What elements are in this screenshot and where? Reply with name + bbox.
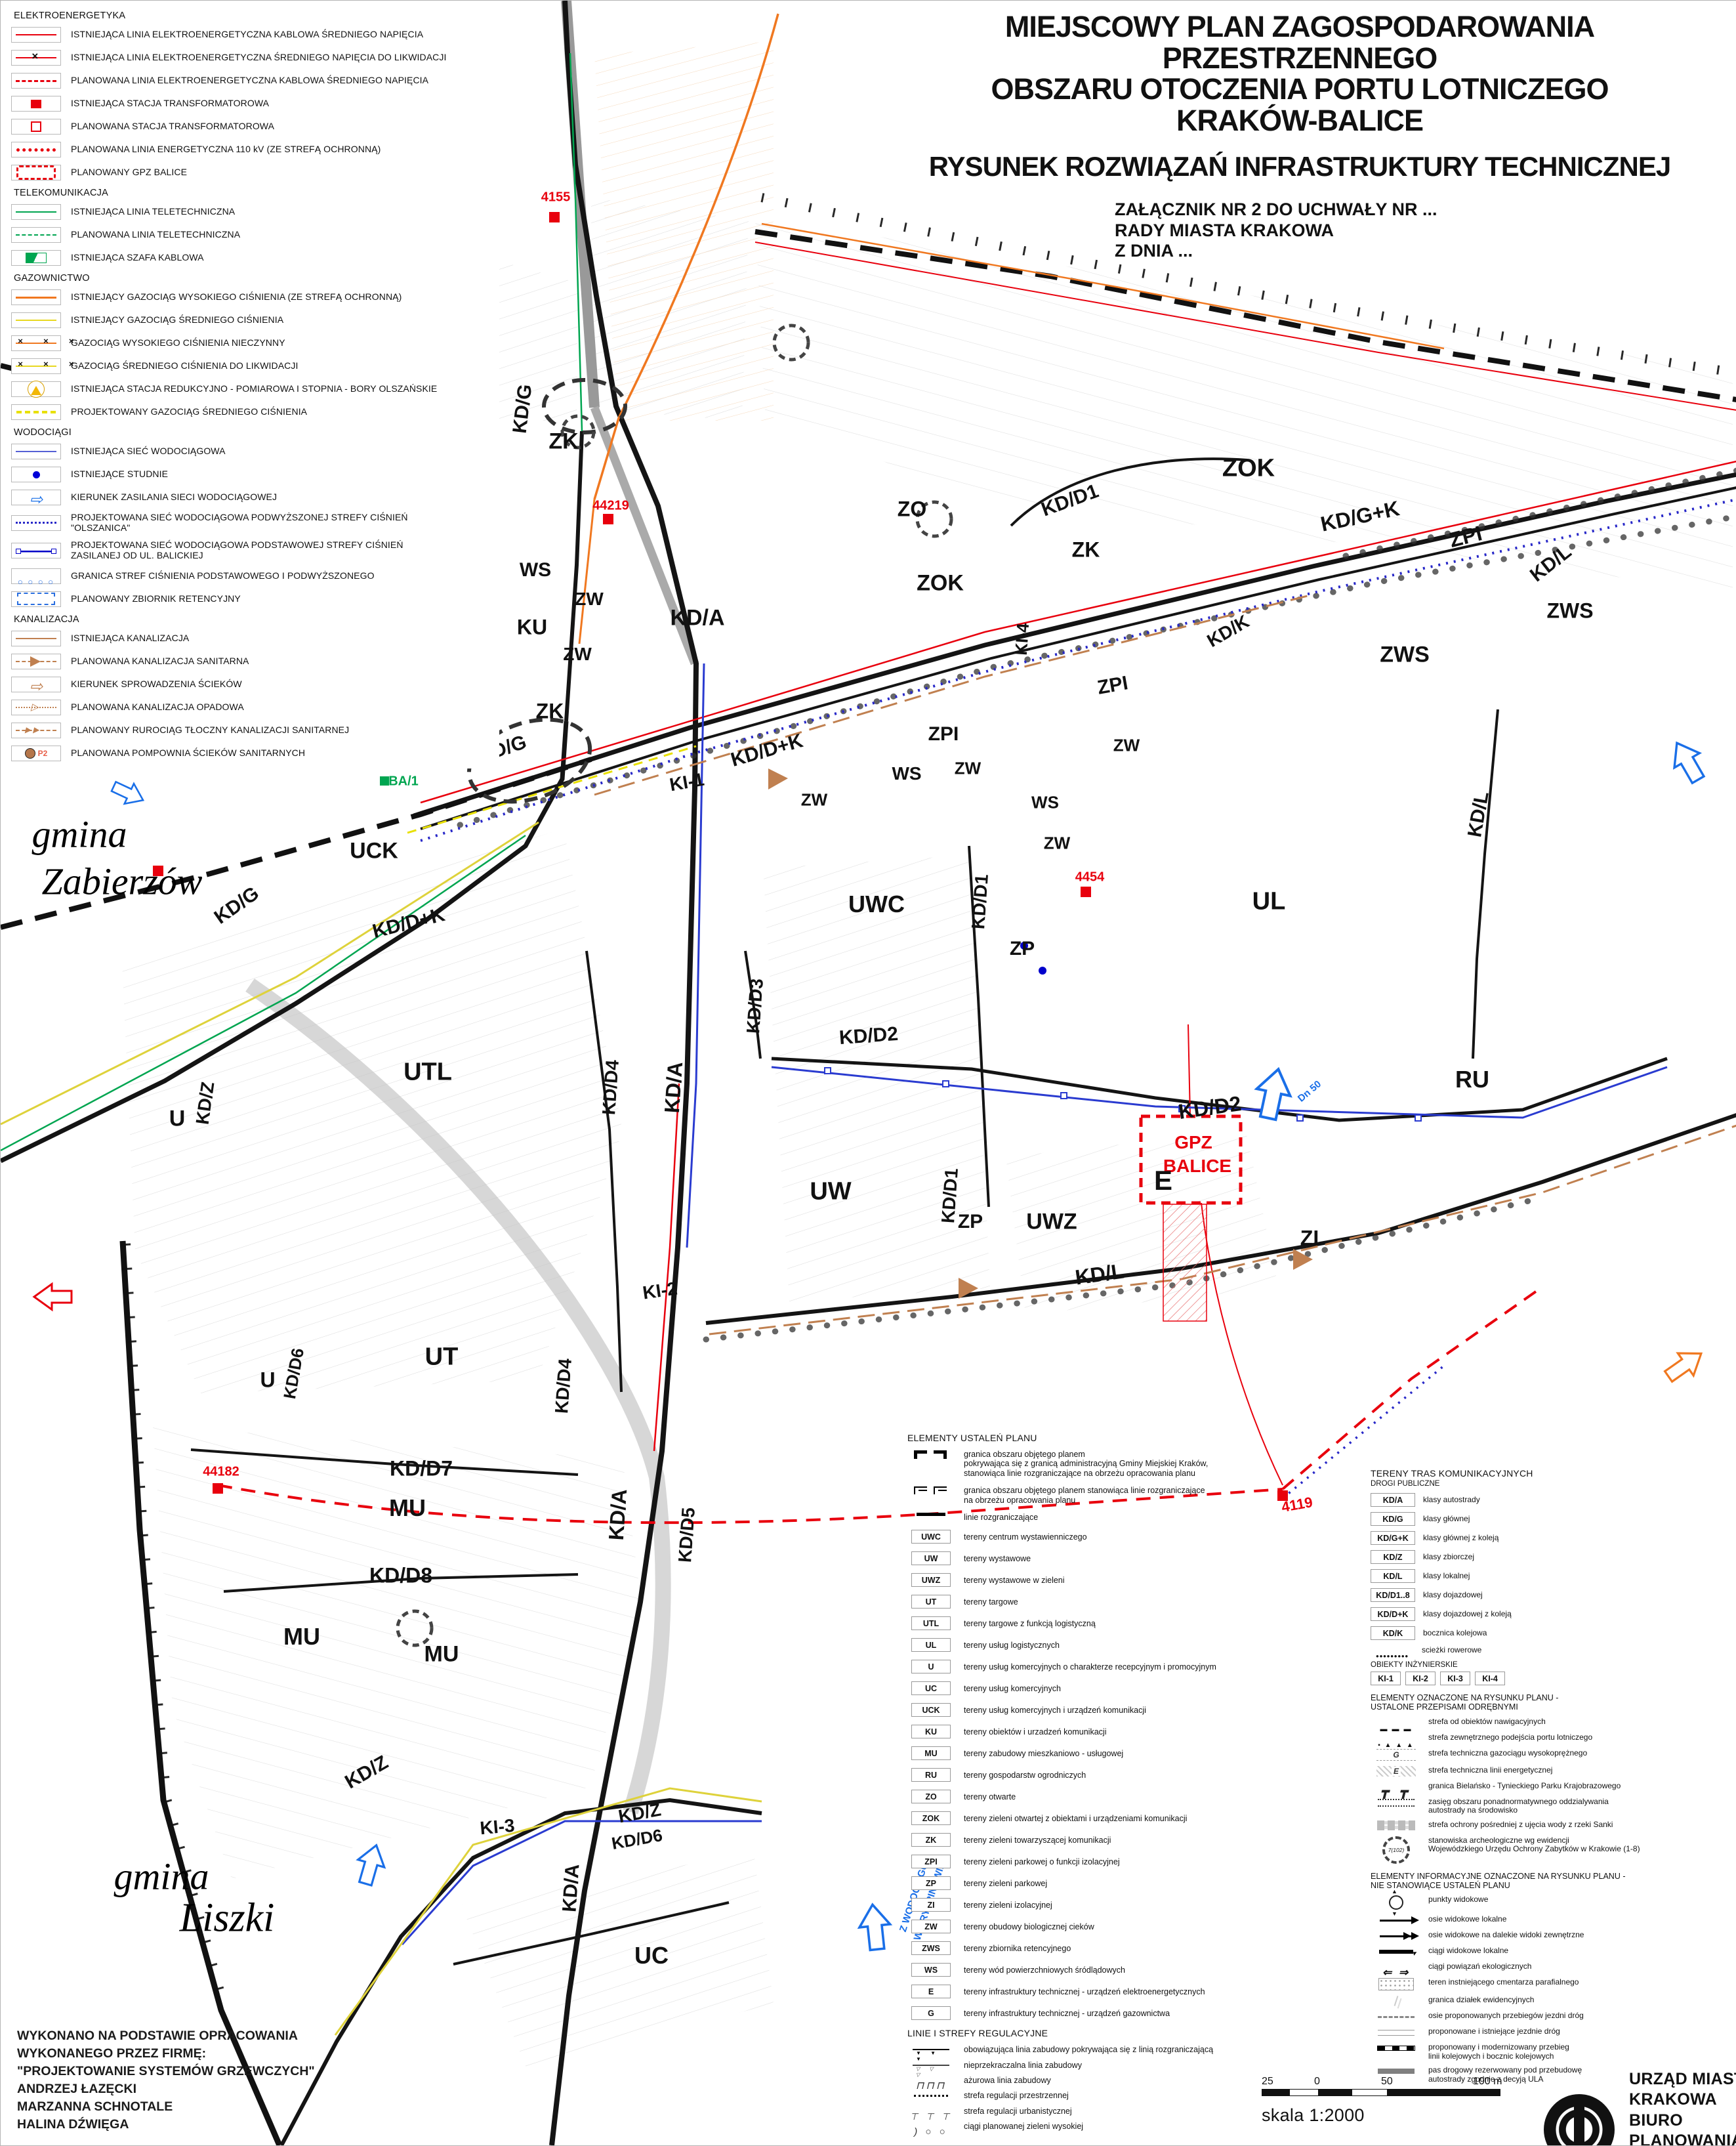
- legend-section-title: ELEMENTY OZNACZONE NA RYSUNKU PLANU - US…: [1371, 1693, 1736, 1712]
- road-code-box: KD/Z: [1371, 1550, 1415, 1564]
- legend-symbol: [1371, 1798, 1422, 1808]
- legend-item-label: nieprzekraczalna linia zabudowy: [964, 2061, 1082, 2070]
- legend-section-title: ELEKTROENERGETYKA: [14, 11, 499, 21]
- zone-code: UCK: [922, 1706, 940, 1715]
- road-code-box: KD/D+K: [1371, 1607, 1415, 1621]
- cable-cabinet: [380, 776, 389, 786]
- scale-ticks: 25 0 50 100 m: [1262, 2076, 1537, 2089]
- engineering-code-box: KI-1: [1371, 1672, 1401, 1685]
- legend-symbol: [1371, 1962, 1422, 1973]
- legend-item: ISTNIEJĄCA KANALIZACJA: [11, 631, 499, 646]
- rect-blue-dash-icon: [17, 593, 55, 605]
- legend-symbol-box: [11, 119, 61, 135]
- legend-item-label: ciągi widokowe lokalne: [1428, 1946, 1508, 1955]
- zone-code-box-wrap: E: [907, 1985, 955, 1998]
- zone-code-box: KU: [911, 1725, 951, 1738]
- legend-item-label: granica obszaru objętego planem stanowią…: [964, 1486, 1205, 1505]
- legend-symbol: [907, 1486, 955, 1495]
- road-code-box: KD/A: [1371, 1493, 1415, 1507]
- zone-code-box-wrap: MU: [907, 1746, 955, 1760]
- zone-code: G: [928, 2009, 934, 2018]
- legend-item: PLANOWANA LINIA TELETECHNICZNA: [11, 227, 499, 243]
- legend-item-label: ISTNIEJĄCA SZAFA KABLOWA: [71, 253, 204, 263]
- zone-code-box-wrap: ZK: [907, 1833, 955, 1847]
- credits-line: WYKONANEGO PRZEZ FIRMĘ:: [17, 2045, 315, 2063]
- thickline-icon: [917, 1513, 945, 1516]
- reg-przest-icon: [914, 2095, 948, 2097]
- road-code: KD/L: [1383, 1572, 1402, 1581]
- zone-code-box: ZP: [911, 1876, 951, 1890]
- legend-item zone: Gtereny infrastruktury technicznej - urz…: [907, 2006, 1351, 2020]
- legend-section-title: TELEKOMUNIKACJA: [14, 188, 499, 198]
- zone-code-box-wrap: UC: [907, 1681, 955, 1695]
- legend-item-label: PLANOWANA LINIA ENERGETYCZNA 110 kV (ZE …: [71, 144, 381, 155]
- legend-item-label: bocznica kolejowa: [1423, 1629, 1487, 1637]
- line-blue-sq-icon: [16, 549, 56, 553]
- legend-item: granica działek ewidencyjnych: [1371, 1996, 1736, 2006]
- legend-item: PROJEKTOWANA SIEĆ WODOCIĄGOWA PODSTAWOWE…: [11, 540, 499, 560]
- legend-item-label: PLANOWANY ZBIORNIK RETENCYJNY: [71, 594, 241, 604]
- scale-tick: 100 m: [1473, 2076, 1502, 2088]
- symbol-inline-text: 7(102): [1388, 1847, 1405, 1853]
- legend-symbol: [1371, 1978, 1422, 1990]
- legend-item-label: klasy dojazdowej z koleją: [1423, 1610, 1512, 1618]
- legend-item-label: strefa zewnętrznego podejścia portu lotn…: [1428, 1733, 1592, 1742]
- plan-title-line-3: OBSZARU OTOCZENIA PORTU LOTNICZEGO: [873, 74, 1726, 105]
- zone-code: UWZ: [922, 1576, 940, 1585]
- zone-code-box-wrap: UW: [907, 1551, 955, 1565]
- legend-item-label: ISTNIEJĄCE STUDNIE: [71, 469, 168, 480]
- zone-code-box: ZK: [911, 1833, 951, 1847]
- legend-item road: KD/Zklasy zbiorczej: [1371, 1550, 1736, 1564]
- zone-code-box: U: [911, 1660, 951, 1673]
- zone-label: tereny zabudowy mieszkaniowo - usługowej: [964, 1749, 1123, 1758]
- zone-code-box: ZW: [911, 1920, 951, 1933]
- legend-item road: KD/D+Kklasy dojazdowej z koleją: [1371, 1607, 1736, 1621]
- legend-item road: KD/Aklasy autostrady: [1371, 1493, 1736, 1507]
- legend-item-label: stanowiska archeologiczne wg ewidencji W…: [1428, 1836, 1640, 1854]
- city-planning-office-logo-icon: [1544, 2094, 1615, 2146]
- zone-code-box-wrap: ZO: [907, 1790, 955, 1803]
- legend-section-title: LINIE I STREFY REGULACYJNE: [907, 2028, 1351, 2038]
- publisher-block: URZĄD MIASTA KRAKOWA BIURO PLANOWANIA PR…: [1544, 2069, 1736, 2146]
- zone-label: tereny zieleni towarzyszącej komunikacji: [964, 1836, 1111, 1845]
- legend-symbol: [1371, 1895, 1422, 1910]
- legend-item: osie proponowanych przebiegów jezdni dró…: [1371, 2011, 1736, 2022]
- legend-item-label: strefa techniczna gazociągu wysokoprężne…: [1428, 1749, 1587, 1757]
- publisher-office: BIURO PLANOWANIA PRZESTRZENNEGO: [1629, 2111, 1736, 2146]
- plan-title-line-4: KRAKÓW-BALICE: [873, 105, 1726, 137]
- legend-symbol: [907, 2095, 955, 2097]
- legend-item-label: klasy lokalnej: [1423, 1572, 1470, 1580]
- scale-tick: 0: [1314, 2076, 1320, 2088]
- zone-label: tereny infrastruktury technicznej - urzą…: [964, 2009, 1170, 2018]
- zone-code-box: UWC: [911, 1530, 951, 1544]
- legend-item-label: ciągi powiązań ekologicznych: [1428, 1962, 1531, 1971]
- scale-bar-graphic: [1262, 2089, 1500, 2096]
- legend-item-label: GRANICA STREF CIŚNIENIA PODSTAWOWEGO I P…: [71, 571, 375, 581]
- legend-item zone: ZWStereny zbiornika retencyjnego: [907, 1941, 1351, 1955]
- zasieg-icon: [1378, 1799, 1415, 1807]
- legend-item-label: GAZOCIĄG ŚREDNIEGO CIŚNIENIA DO LIKWIDAC…: [71, 361, 298, 371]
- legend-item: Estrefa techniczna linii energetycznej: [1371, 1766, 1736, 1777]
- zone-label: tereny obudowy biologicznej cieków: [964, 1922, 1094, 1931]
- legend-item zone: KUtereny obiektów i urzadzeń komunikacji: [907, 1725, 1351, 1738]
- legend-item zone: UCKtereny usług komercyjnych i urządzeń …: [907, 1703, 1351, 1717]
- legend-symbol-box: [11, 568, 61, 584]
- legend-item-label: PROJEKTOWANA SIEĆ WODOCIĄGOWA PODWYŻSZON…: [71, 513, 408, 533]
- zone-code: ZI: [927, 1901, 934, 1910]
- legend-item-label: ISTNIEJĄCA LINIA ELEKTROENERGETYCZNA ŚRE…: [71, 53, 446, 63]
- sq-red-icon: [31, 100, 41, 108]
- legend-item: ISTNIEJĄCA LINIA TELETECHNICZNA: [11, 204, 499, 220]
- legend-symbol-box: [11, 27, 61, 43]
- line-orange-x-icon: [16, 343, 56, 344]
- line-brown-icon: [16, 638, 56, 639]
- zone-code: ZO: [925, 1792, 936, 1801]
- legend-item zone: RUtereny gospodarstw ogrodniczych: [907, 1768, 1351, 1782]
- zone-label: tereny targowe: [964, 1597, 1018, 1607]
- road-code: KD/G+K: [1377, 1534, 1409, 1543]
- zone-code: UL: [926, 1641, 937, 1650]
- publisher-name: URZĄD MIASTA KRAKOWA: [1629, 2069, 1736, 2111]
- legend-item zone: ZWtereny obudowy biologicznej cieków: [907, 1920, 1351, 1933]
- zone-code-box: G: [911, 2006, 951, 2020]
- legend-item: osie widokowe lokalne: [1371, 1915, 1736, 1925]
- engineering-code-box: KI-3: [1440, 1672, 1470, 1685]
- legend-item-label: ISTNIEJĄCA SIEĆ WODOCIĄGOWA: [71, 446, 226, 457]
- plan-title-line-2: PRZESTRZENNEGO: [873, 43, 1726, 74]
- legend-symbol-box: [11, 204, 61, 220]
- plan-subtitle: RYSUNEK ROZWIĄZAŃ INFRASTRUKTURY TECHNIC…: [873, 151, 1726, 182]
- legend-symbol: [1371, 2027, 1422, 2038]
- legend-item zone: ZPItereny zieleni parkowej o funkcji izo…: [907, 1855, 1351, 1868]
- zone-code-box: ZPI: [911, 1855, 951, 1868]
- legend-item-label: KIERUNEK ZASILANIA SIECI WODOCIĄGOWEJ: [71, 492, 277, 503]
- legend-item: linie rozgraniczające: [907, 1513, 1351, 1522]
- punkt-icon: [1389, 1895, 1403, 1910]
- legend-symbol-box: [11, 444, 61, 459]
- legend-item-label: KIERUNEK SPROWADZENIA ŚCIEKÓW: [71, 679, 242, 690]
- zone-code-box: UTL: [911, 1616, 951, 1630]
- road-code: KD/D+K: [1378, 1610, 1409, 1619]
- zone-code: UW: [924, 1554, 938, 1563]
- szafa-icon: [26, 253, 47, 263]
- credits-line: MARZANNA SCHNOTALE: [17, 2098, 315, 2116]
- legend-item-label: PROJEKTOWANY GAZOCIĄG ŚREDNIEGO CIŚNIENI…: [71, 407, 307, 417]
- legend-item-label: PLANOWANA STACJA TRANSFORMATOROWA: [71, 121, 274, 132]
- zone-code-box-wrap: UCK: [907, 1703, 955, 1717]
- legend-item: proponowany i modernizowany przebieg lin…: [1371, 2043, 1736, 2061]
- granica1-icon: [912, 1450, 950, 1460]
- legend-symbol: E: [1371, 1766, 1422, 1777]
- attachment-line-3: Z DNIA ...: [1115, 241, 1726, 262]
- scale-tick: 50: [1381, 2076, 1393, 2088]
- zone-code: RU: [925, 1771, 937, 1780]
- line-brown-arrf-icon: [16, 661, 56, 662]
- legend-item: ISTNIEJĄCE STUDNIE: [11, 467, 499, 482]
- legend-item road: KD/D1..8klasy dojazdowej: [1371, 1588, 1736, 1602]
- legend-item: GRANICA STREF CIŚNIENIA PODSTAWOWEGO I P…: [11, 568, 499, 584]
- os-lok-icon: [1380, 1920, 1413, 1922]
- road-code-box: KD/G+K: [1371, 1531, 1415, 1545]
- zone-code: UT: [926, 1597, 937, 1607]
- zone-code: UWC: [921, 1532, 941, 1542]
- legend-plan-elements: ELEMENTY USTALEŃ PLANUgranica obszaru ob…: [907, 1433, 1351, 2137]
- line-red-dash-icon: [16, 80, 56, 82]
- legend-symbol-box: P2: [11, 746, 61, 761]
- credits-line: ANDRZEJ ŁAZĘCKI: [17, 2080, 315, 2098]
- line-brown-arr2-icon: [16, 730, 56, 731]
- zone-code-box-wrap: U: [907, 1660, 955, 1673]
- legend-subtitle: DROGI PUBLICZNE: [1371, 1480, 1736, 1488]
- legend-item zone: UWZtereny wystawowe w zieleni: [907, 1573, 1351, 1587]
- road-code: KD/A: [1383, 1496, 1403, 1505]
- zone-code-box-wrap: RU: [907, 1768, 955, 1782]
- jezdnie-icon: [1378, 2030, 1415, 2036]
- cmentarz-icon: [1378, 1978, 1414, 1990]
- legend-item zone: UWCtereny centrum wystawienniczego: [907, 1530, 1351, 1544]
- zone-label: tereny usług komercyjnych: [964, 1684, 1061, 1693]
- legend-item: PLANOWANA LINIA ELEKTROENERGETYCZNA KABL…: [11, 73, 499, 89]
- legend-symbol-box: [11, 96, 61, 112]
- gpz-icon: [16, 165, 56, 180]
- legend-symbol: [1371, 1645, 1414, 1656]
- zone-code-box-wrap: UWZ: [907, 1573, 955, 1587]
- legend-item: ISTNIEJĄCA STACJA TRANSFORMATOROWA: [11, 96, 499, 112]
- legend-item-label: klasy głównej: [1423, 1515, 1470, 1523]
- legend-item-label: ISTNIEJĄCA LINIA TELETECHNICZNA: [71, 207, 235, 217]
- title-block: MIEJSCOWY PLAN ZAGOSPODAROWANIA PRZESTRZ…: [873, 11, 1726, 262]
- zone-code: ZP: [926, 1879, 936, 1888]
- legend-item-label: PLANOWANA KANALIZACJA OPADOWA: [71, 702, 244, 713]
- zone-label: tereny otwarte: [964, 1792, 1016, 1801]
- zone-code-box: E: [911, 1985, 951, 1998]
- legend-symbol-box: [11, 543, 61, 558]
- legend-item: PLANOWANA LINIA ENERGETYCZNA 110 kV (ZE …: [11, 142, 499, 158]
- legend-item-label: strefa ochrony pośredniej z ujęcia wody …: [1428, 1820, 1613, 1829]
- legend-section-title: OBIEKTY INŻYNIERSKIE: [1371, 1661, 1736, 1669]
- legend-item: strefa ochrony pośredniej z ujęcia wody …: [1371, 1820, 1736, 1831]
- engineering-code-box: KI-2: [1405, 1672, 1436, 1685]
- legend-item-label: PLANOWANA KANALIZACJA SANITARNA: [71, 656, 249, 667]
- legend-symbol: 7(102): [1371, 1836, 1422, 1864]
- zone-code: MU: [924, 1749, 937, 1758]
- legend-item-label: osie widokowe na dalekie widoki zewnętrz…: [1428, 1931, 1584, 1939]
- zone-code-box-wrap: WS: [907, 1963, 955, 1977]
- legend-symbol-box: [11, 142, 61, 158]
- road-code: KD/K: [1383, 1629, 1403, 1638]
- zone-label: tereny zieleni otwartej z obiektami i ur…: [964, 1814, 1187, 1823]
- road-code: KD/G: [1382, 1515, 1403, 1524]
- legend-symbol-box: [11, 515, 61, 531]
- engineering-objects-row: KI-1KI-2KI-3KI-4: [1371, 1672, 1736, 1685]
- engineering-code-box: KI-4: [1475, 1672, 1505, 1685]
- os-prop-icon: [1378, 2016, 1415, 2018]
- legend-symbol: [907, 2065, 955, 2066]
- zone-code-box: WS: [911, 1963, 951, 1977]
- legend-item-label: PLANOWANY GPZ BALICE: [71, 167, 187, 178]
- legend-item: osie widokowe na dalekie widoki zewnętrz…: [1371, 1931, 1736, 1941]
- legend-item-label: klasy dojazdowej: [1423, 1591, 1483, 1599]
- zone-label: tereny usług logistycznych: [964, 1641, 1060, 1650]
- zone-code-box-wrap: ZI: [907, 1898, 955, 1912]
- legend-item-label: teren instniejącego cmentarza parafialne…: [1428, 1978, 1579, 1987]
- plan-title-line-1: MIEJSCOWY PLAN ZAGOSPODAROWANIA: [873, 11, 1726, 43]
- credits-line: "PROJEKTOWANIE SYSTEMÓW GRZEWCZYCH": [17, 2063, 315, 2080]
- scale-bar: 25 0 50 100 m skala 1:2000: [1262, 2076, 1537, 2126]
- legend-item: teren instniejącego cmentarza parafialne…: [1371, 1978, 1736, 1990]
- zone-code: ZOK: [922, 1814, 940, 1823]
- legend-symbol-box: [11, 250, 61, 266]
- legend-symbol-box: [11, 490, 61, 505]
- legend-item-label: klasy zbiorczej: [1423, 1553, 1474, 1561]
- zone-label: tereny gospodarstw ogrodniczych: [964, 1771, 1086, 1780]
- road-code: KD/Z: [1383, 1553, 1402, 1562]
- legend-item: KIERUNEK ZASILANIA SIECI WODOCIĄGOWEJ: [11, 490, 499, 505]
- zone-code: ZPI: [924, 1857, 937, 1866]
- legend-symbol: [1371, 2011, 1422, 2022]
- zone-code-box: UW: [911, 1551, 951, 1565]
- legend-item-label: GAZOCIĄG WYSOKIEGO CIŚNIENIA NIECZYNNY: [71, 338, 285, 348]
- zone-code: ZK: [926, 1836, 937, 1845]
- legend-item: ISTNIEJĄCA SZAFA KABLOWA: [11, 250, 499, 266]
- stacja-gaz-icon: [28, 381, 45, 398]
- zone-code-box: UWZ: [911, 1573, 951, 1587]
- legend-item-label: PROJEKTOWANA SIEĆ WODOCIĄGOWA PODSTAWOWE…: [71, 540, 403, 560]
- legend-item: obowiązująca linia zabudowy pokrywająca …: [907, 2045, 1351, 2054]
- credits-line: HALINA DŹWIĘGA: [17, 2116, 315, 2134]
- line-blue-icon: [16, 451, 56, 452]
- legend-item zone: Etereny infrastruktury technicznej - urz…: [907, 1985, 1351, 1998]
- legend-item: ISTNIEJĄCY GAZOCIĄG ŚREDNIEGO CIŚNIENIA: [11, 312, 499, 328]
- zone-label: tereny usług komercyjnych i urządzeń kom…: [964, 1706, 1146, 1715]
- zone-code-box-wrap: ZWS: [907, 1941, 955, 1955]
- legend-symbol-box: [11, 312, 61, 328]
- legend-item: PLANOWANY GPZ BALICE: [11, 165, 499, 180]
- legend-symbol-box: [11, 50, 61, 66]
- legend-symbol-box: [11, 404, 61, 420]
- line-blue-dots-icon: [16, 522, 56, 524]
- line-red-dot-icon: [16, 148, 56, 152]
- zone-code-box-wrap: ZOK: [907, 1811, 955, 1825]
- attachment-line-2: RADY MIASTA KRAKOWA: [1115, 221, 1726, 242]
- zone-label: tereny zieleni izolacyjnej: [964, 1901, 1052, 1910]
- legend-symbol: [1371, 1996, 1422, 2006]
- legend-item-label: ciągi planowanej zieleni wysokiej: [964, 2122, 1083, 2131]
- legend-item-label: strefa od obiektów nawigacyjnych: [1428, 1717, 1546, 1726]
- granica2-icon: [912, 1486, 950, 1495]
- line-yellow-dashb-icon: [16, 411, 56, 413]
- zone-code-box: UCK: [911, 1703, 951, 1717]
- legend-symbol-box: [11, 591, 61, 607]
- zone-label: tereny obiektów i urzadzeń komunikacji: [964, 1727, 1106, 1736]
- zone-label: tereny targowe z funkcją logistyczną: [964, 1619, 1096, 1628]
- archeo-icon: 7(102): [1382, 1836, 1410, 1864]
- legend-item zone: MUtereny zabudowy mieszkaniowo - usługow…: [907, 1746, 1351, 1760]
- zone-code-box-wrap: G: [907, 2006, 955, 2020]
- scale-tick: 25: [1262, 2076, 1273, 2088]
- legend-item zone: UWtereny wystawowe: [907, 1551, 1351, 1565]
- zone-label: tereny zieleni parkowej: [964, 1879, 1047, 1888]
- legend-symbol-box: [11, 358, 61, 374]
- legend-title: ELEMENTY USTALEŃ PLANU: [907, 1433, 1351, 1443]
- line-green-icon: [16, 211, 56, 213]
- legend-symbol: [1371, 1931, 1422, 1941]
- line-orange-icon: [16, 297, 56, 299]
- legend-item-label: strefa techniczna linii energetycznej: [1428, 1766, 1552, 1775]
- zone-code: ZWS: [922, 1944, 940, 1953]
- legend-item: ISTNIEJĄCY GAZOCIĄG WYSOKIEGO CIŚNIENIA …: [11, 289, 499, 305]
- legend-item-label: klasy głównej z koleją: [1423, 1534, 1498, 1542]
- legend-item: PLANOWANY RUROCIĄG TŁOCZNY KANALIZACJI S…: [11, 723, 499, 738]
- legend-item: ISTNIEJĄCA LINIA ELEKTROENERGETYCZNA ŚRE…: [11, 50, 499, 66]
- legend-item zone: ULtereny usług logistycznych: [907, 1638, 1351, 1652]
- legend-item zone: ZKtereny zieleni towarzyszącej komunikac…: [907, 1833, 1351, 1847]
- legend-item-label: klasy autostrady: [1423, 1496, 1480, 1504]
- road-code-box: KD/G: [1371, 1512, 1415, 1526]
- legend-item: PROJEKTOWANA SIEĆ WODOCIĄGOWA PODWYŻSZON…: [11, 513, 499, 533]
- zone-label: tereny zieleni parkowej o funkcji izolac…: [964, 1857, 1120, 1866]
- zone-code-box: ZI: [911, 1898, 951, 1912]
- legend-item: ISTNIEJĄCA LINIA ELEKTROENERGETYCZNA KAB…: [11, 27, 499, 43]
- legend-item: strefa zewnętrznego podejścia portu lotn…: [1371, 1733, 1736, 1744]
- legend-item-label: ISTNIEJĄCY GAZOCIĄG ŚREDNIEGO CIŚNIENIA: [71, 315, 283, 326]
- legend-item-label: punkty widokowe: [1428, 1895, 1488, 1904]
- legend-symbol: G: [1371, 1749, 1422, 1761]
- legend-item road: KD/G+Kklasy głównej z koleją: [1371, 1531, 1736, 1545]
- zone-code-box-wrap: ZPI: [907, 1855, 955, 1868]
- legend-item: GAZOCIĄG ŚREDNIEGO CIŚNIENIA DO LIKWIDAC…: [11, 358, 499, 374]
- legend-symbol: [1371, 1946, 1422, 1957]
- ciag-wid-icon: [1379, 1950, 1413, 1954]
- zone-label: tereny zbiornika retencyjnego: [964, 1944, 1071, 1953]
- legend-item: ISTNIEJĄCA STACJA REDUKCYJNO - POMIAROWA…: [11, 381, 499, 397]
- zone-code-box-wrap: ZW: [907, 1920, 955, 1933]
- zone-code-box-wrap: UT: [907, 1595, 955, 1609]
- zone-code-box-wrap: UL: [907, 1638, 955, 1652]
- os-dal-icon: [1380, 1935, 1413, 1937]
- legend-item-label: linie rozgraniczające: [964, 1513, 1038, 1522]
- legend-item-label: granica działek ewidencyjnych: [1428, 1996, 1534, 2004]
- strefa-g-icon: G: [1376, 1749, 1416, 1761]
- legend-item road: KD/Gklasy głównej: [1371, 1512, 1736, 1526]
- legend-section-title: GAZOWNICTWO: [14, 273, 499, 284]
- legend-item: PLANOWANY ZBIORNIK RETENCYJNY: [11, 591, 499, 607]
- legend-item zone: UTLtereny targowe z funkcją logistyczną: [907, 1616, 1351, 1630]
- dot-blue-icon: [33, 471, 40, 478]
- road-code: KD/D1..8: [1376, 1591, 1409, 1600]
- legend-item-label: osie proponowanych przebiegów jezdni dró…: [1428, 2011, 1584, 2020]
- zone-label: tereny wystawowe w zieleni: [964, 1576, 1065, 1585]
- legend-symbol-box: [11, 700, 61, 715]
- sq-red-o-icon: [31, 121, 41, 132]
- legend-item road: scieżki rowerowe: [1371, 1645, 1736, 1656]
- legend-item: strefa od obiektów nawigacyjnych: [1371, 1717, 1736, 1728]
- legend-item-label: ażurowa linia zabudowy: [964, 2076, 1051, 2085]
- legend-item-label: scieżki rowerowe: [1422, 1646, 1481, 1654]
- credits-block: WYKONANO NA PODSTAWIE OPRACOWANIAWYKONAN…: [17, 2027, 315, 2133]
- legend-item-label: strefa regulacji urbanistycznej: [964, 2107, 1072, 2116]
- legend-item zone: Utereny usług komercyjnych o charakterze…: [907, 1660, 1351, 1673]
- legend-item-label: PLANOWANA LINIA TELETECHNICZNA: [71, 230, 240, 240]
- legend-symbol-box: [11, 654, 61, 669]
- legend-item-label: ISTNIEJĄCA KANALIZACJA: [71, 633, 189, 644]
- legend-item-label: ISTNIEJĄCA STACJA REDUKCYJNO - POMIAROWA…: [71, 384, 437, 394]
- legend-item-label: ISTNIEJĄCA LINIA ELEKTROENERGETYCZNA KAB…: [71, 30, 423, 40]
- legend-item-label: granica Bielańsko - Tynieckiego Parku Kr…: [1428, 1782, 1621, 1790]
- legend-item: KIERUNEK SPROWADZENIA ŚCIEKÓW: [11, 677, 499, 692]
